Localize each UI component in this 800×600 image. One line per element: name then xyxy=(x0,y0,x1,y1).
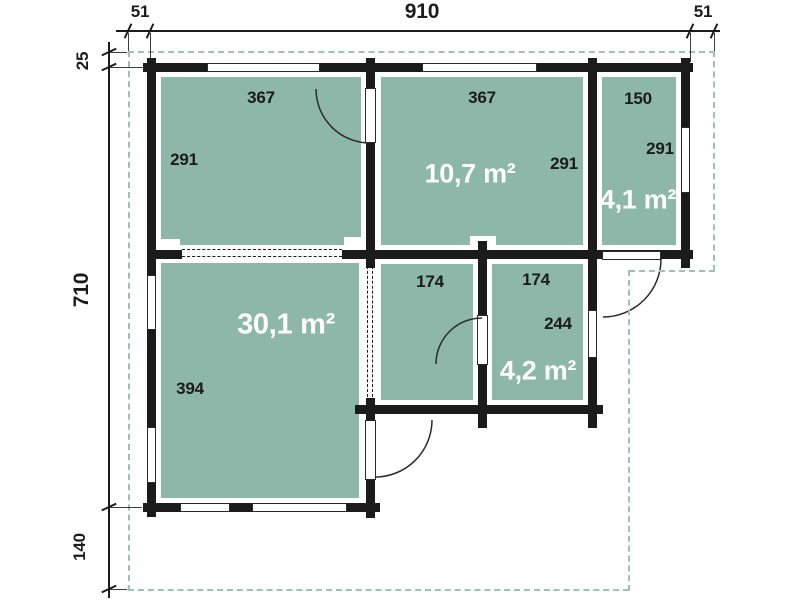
dim-label-overall-width: 910 xyxy=(405,0,439,24)
room-dim-bottom-middle-width: 174 xyxy=(416,272,444,292)
room-dim-top-middle-width: 367 xyxy=(468,88,496,108)
dim-label-overhang-right: 51 xyxy=(694,2,713,22)
room-dim-top-right-width: 150 xyxy=(624,89,652,109)
roof-outline-step xyxy=(629,270,715,272)
room-dim-top-left-width: 367 xyxy=(247,88,275,108)
dim-extension xyxy=(110,589,127,590)
area-label-bottom-right: 4,2 m² xyxy=(500,356,576,387)
room-dim-bottom-right-height: 244 xyxy=(544,314,572,334)
door-arc-exterior-right xyxy=(603,259,661,317)
door-arc-exterior-mid xyxy=(375,420,432,477)
dim-label-overhang-top: 25 xyxy=(73,52,93,71)
room-dim-top-left-height: 291 xyxy=(170,150,198,170)
room-dim-bottom-left-height: 394 xyxy=(176,379,204,399)
area-label-top-middle: 10,7 m² xyxy=(425,159,516,190)
roof-outline-top xyxy=(128,51,715,53)
dim-extension xyxy=(690,33,691,62)
area-label-bottom-left: 30,1 m² xyxy=(237,309,335,342)
roof-outline-right-upper xyxy=(713,51,715,271)
dim-label-terrace-depth: 140 xyxy=(70,533,90,561)
dim-extension xyxy=(128,33,129,51)
room-dim-bottom-right-width: 174 xyxy=(522,270,550,290)
dim-line-top xyxy=(116,30,720,32)
dim-label-overhang-left: 51 xyxy=(131,2,150,22)
dim-extension xyxy=(110,52,127,53)
roof-outline-left xyxy=(128,51,130,591)
floor-plan: 51 910 51 25 710 140 367 291 367 291 150… xyxy=(0,0,800,600)
dim-extension xyxy=(110,67,146,68)
dim-extension xyxy=(150,33,151,62)
room-dim-top-middle-height: 291 xyxy=(550,154,578,174)
door-arc-top-left-room xyxy=(316,89,370,143)
roof-outline-right-lower xyxy=(628,270,630,591)
door-arc-bottom-middle xyxy=(436,318,482,364)
dim-extension xyxy=(714,33,715,51)
dim-line-left xyxy=(108,42,110,598)
dim-label-overall-height: 710 xyxy=(70,273,94,307)
door-swing-arcs xyxy=(0,0,800,600)
room-dim-top-right-height: 291 xyxy=(646,139,674,159)
dim-extension xyxy=(110,507,142,508)
area-label-top-right: 4,1 m² xyxy=(600,185,676,216)
roof-outline-bottom xyxy=(128,589,629,591)
